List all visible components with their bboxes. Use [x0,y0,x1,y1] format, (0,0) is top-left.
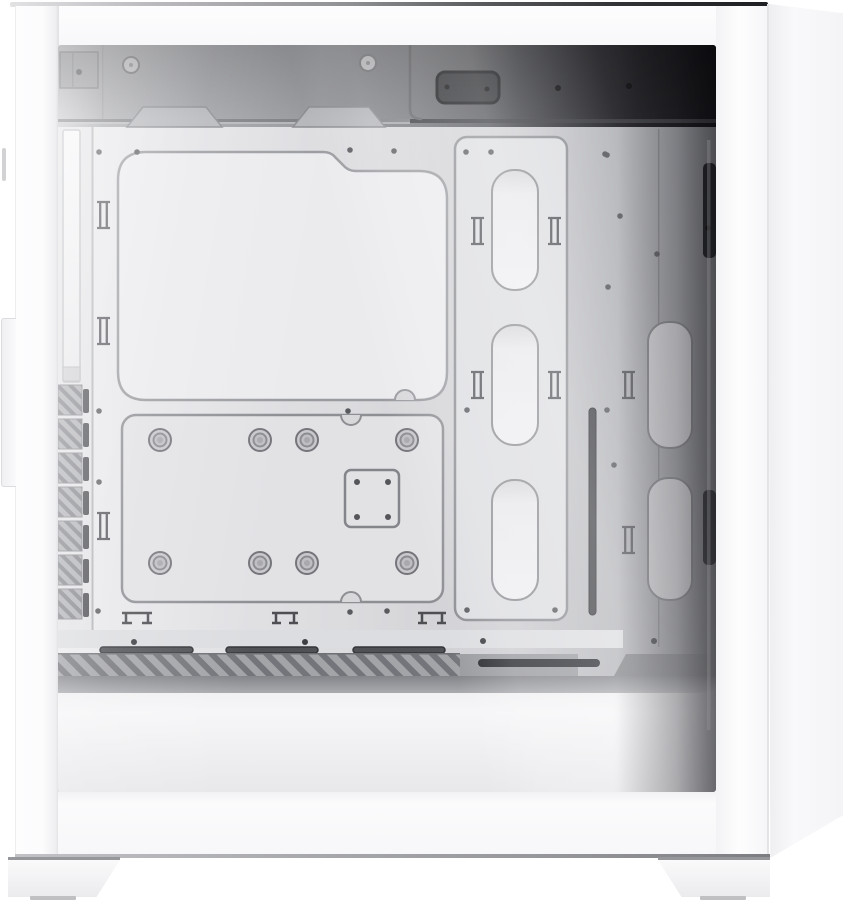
side-panel-bottom-frame [58,792,716,855]
shroud-rear-section [614,654,716,676]
front-panel-lip [1,318,16,487]
rear-crease-line [767,4,769,856]
glass-edge-highlight [707,140,711,730]
front-panel-notch [2,148,6,181]
grommet-plate [122,415,443,602]
led-diffuser-strip [63,130,80,382]
right-foot-shadow [658,857,770,860]
top-panel [15,6,768,45]
shroud-dark-slot [478,659,600,667]
shroud-louvers [58,654,460,676]
front-panel [15,6,59,855]
channel-cutout [492,325,538,445]
case-interior [58,45,716,792]
channel-cutout [492,170,538,290]
pc-case-product-photo [0,0,843,900]
top-fan-rail [58,45,716,127]
thin-routing-slot [589,408,596,615]
shroud-top-slots [100,647,445,653]
tempered-glass-panel [58,45,716,792]
side-panel-rear-frame [716,6,768,855]
left-foot [8,860,120,897]
diffuser-end-cap [63,367,80,381]
left-foot-pad [30,896,76,900]
right-foot [658,860,770,897]
channel-cutout [492,480,538,600]
front-fan-rail [58,45,93,647]
tray-front-edge [92,127,94,647]
rear-chamfer [768,3,843,858]
front-vent-blocks [58,385,82,619]
right-foot-pad [700,896,746,900]
bottom-edge [15,854,770,858]
left-foot-shadow [8,857,120,860]
cpu-backplate-cutout [118,152,447,400]
